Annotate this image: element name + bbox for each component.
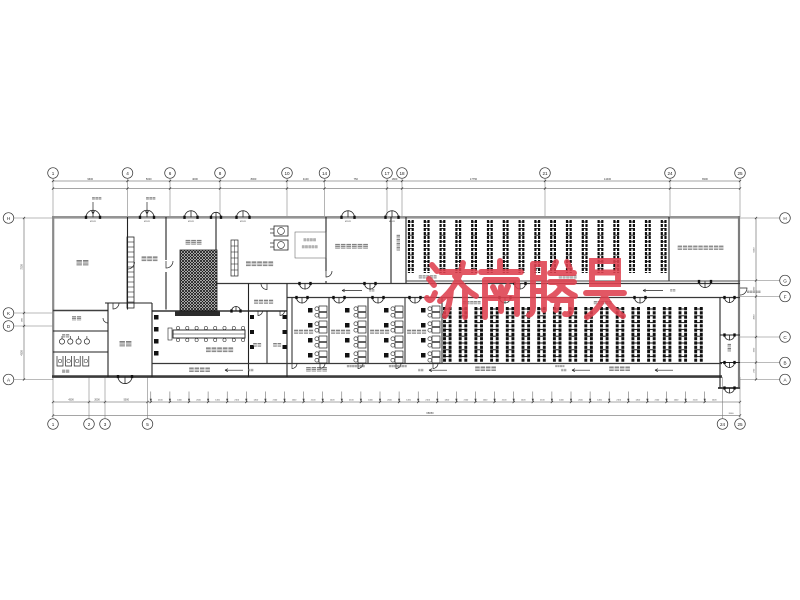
svg-text:17: 17 [384, 171, 390, 176]
svg-text:H: H [7, 216, 10, 221]
svg-text:5: 5 [146, 422, 149, 427]
svg-text:2: 2 [88, 422, 91, 427]
svg-text:4050: 4050 [754, 314, 756, 320]
svg-text:9600: 9600 [87, 177, 93, 181]
svg-text:8000: 8000 [251, 177, 257, 181]
svg-text:2000: 2000 [94, 399, 100, 402]
svg-text:4300: 4300 [21, 350, 24, 356]
svg-text:1: 1 [52, 422, 55, 427]
svg-text:4000: 4000 [192, 177, 198, 181]
svg-text:10: 10 [284, 171, 290, 176]
svg-text:24: 24 [720, 422, 726, 427]
svg-text:4: 4 [126, 171, 129, 176]
svg-text:4300: 4300 [68, 399, 74, 402]
svg-text:68050: 68050 [426, 411, 434, 415]
svg-text:G: G [783, 278, 787, 283]
svg-text:25: 25 [737, 422, 743, 427]
svg-text:18: 18 [399, 171, 405, 176]
svg-text:21: 21 [542, 171, 548, 176]
svg-text:24: 24 [667, 171, 673, 176]
svg-text:M7021: M7021 [240, 221, 247, 223]
svg-text:7200: 7200 [21, 264, 24, 270]
svg-text:6250: 6250 [754, 247, 756, 253]
svg-text:1800: 1800 [392, 177, 398, 181]
svg-text:M7021: M7021 [90, 221, 97, 223]
svg-text:6: 6 [169, 171, 172, 176]
svg-text:H: H [783, 216, 786, 221]
svg-text:1: 1 [52, 171, 55, 176]
svg-text:M7021: M7021 [389, 221, 396, 223]
svg-text:25: 25 [737, 171, 743, 176]
svg-text:14: 14 [322, 171, 328, 176]
svg-text:5000: 5000 [146, 177, 152, 181]
svg-text:750: 750 [354, 177, 359, 181]
svg-text:4100: 4100 [303, 177, 309, 181]
svg-text:M7021: M7021 [144, 221, 151, 223]
svg-text:2000: 2000 [729, 413, 735, 415]
svg-text:M7021: M7021 [188, 221, 195, 223]
svg-text:8: 8 [219, 171, 222, 176]
svg-text:3: 3 [104, 422, 107, 427]
svg-text:17750: 17750 [470, 177, 478, 181]
svg-text:M7021: M7021 [345, 221, 352, 223]
svg-text:B: B [783, 360, 786, 365]
svg-text:14400: 14400 [604, 177, 612, 181]
svg-text:5000: 5000 [124, 399, 130, 402]
svg-text:8300: 8300 [702, 177, 708, 181]
svg-text:F: F [784, 294, 787, 299]
